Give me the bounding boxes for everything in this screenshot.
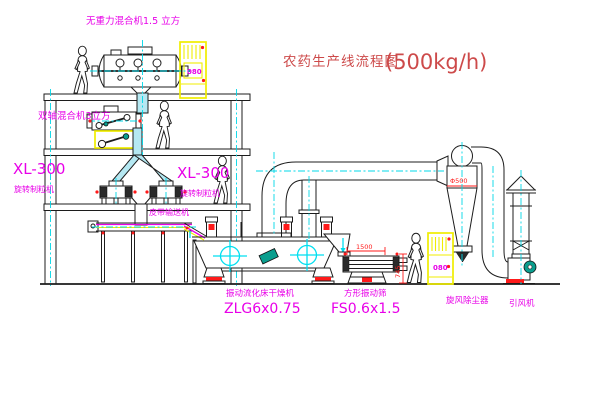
fluid-bed-dryer (192, 217, 350, 284)
flow-diagram-canvas: 080 (0, 0, 600, 403)
sieve-length-dim: 1500 (356, 243, 373, 251)
second-mixer-label: 双轴混合机3立方 (38, 110, 111, 122)
cabinet-top-panel-text: 080 (187, 68, 202, 76)
dryer-feet (203, 268, 334, 284)
granulator-left-name: 旋转制粒机 (14, 184, 54, 194)
belt-conveyor (88, 221, 192, 282)
dimension-1500: 1500 (347, 243, 385, 255)
person-top-floor (74, 46, 89, 93)
dryer-name-label: 振动流化床干燥机 (226, 288, 295, 299)
cabinet-ground-panel-text: 080 (433, 264, 448, 272)
person-second-floor (156, 101, 171, 148)
belt-conveyor-label: 皮带输送机 (149, 207, 189, 217)
cyclone-label: 旋风除尘器 (446, 295, 489, 306)
cyclone-diameter-dim: Φ500 (450, 177, 468, 185)
control-cabinet-top: 080 (180, 42, 206, 98)
sieve-height-dim: 745 (394, 266, 402, 278)
sieve-model-label: FS0.6x1.5 (331, 301, 401, 317)
page-title-capacity: (500kg/h) (385, 50, 487, 74)
person-ground (407, 233, 423, 282)
control-cabinet-ground: 080 (428, 233, 453, 284)
page-title: 农药生产线流程图 (283, 54, 399, 70)
induced-draft-fan (503, 254, 536, 284)
granulator-right-name: 旋转制粒机 (180, 188, 220, 198)
fan-label: 引风机 (509, 298, 535, 309)
top-mixer-label: 无重力混合机1.5 立方 (86, 15, 180, 27)
granulator-right-model: XL-300 (177, 164, 229, 182)
cyclone-discharge-cone (456, 252, 469, 262)
granulator-discharge (132, 198, 150, 225)
granulator-left-model: XL-300 (13, 160, 65, 178)
sieve-name-label: 方形振动筛 (344, 288, 387, 299)
gravity-free-mixer (92, 47, 190, 93)
dryer-model-label: ZLG6x0.75 (224, 301, 301, 317)
mixer-drive-box (95, 131, 135, 148)
